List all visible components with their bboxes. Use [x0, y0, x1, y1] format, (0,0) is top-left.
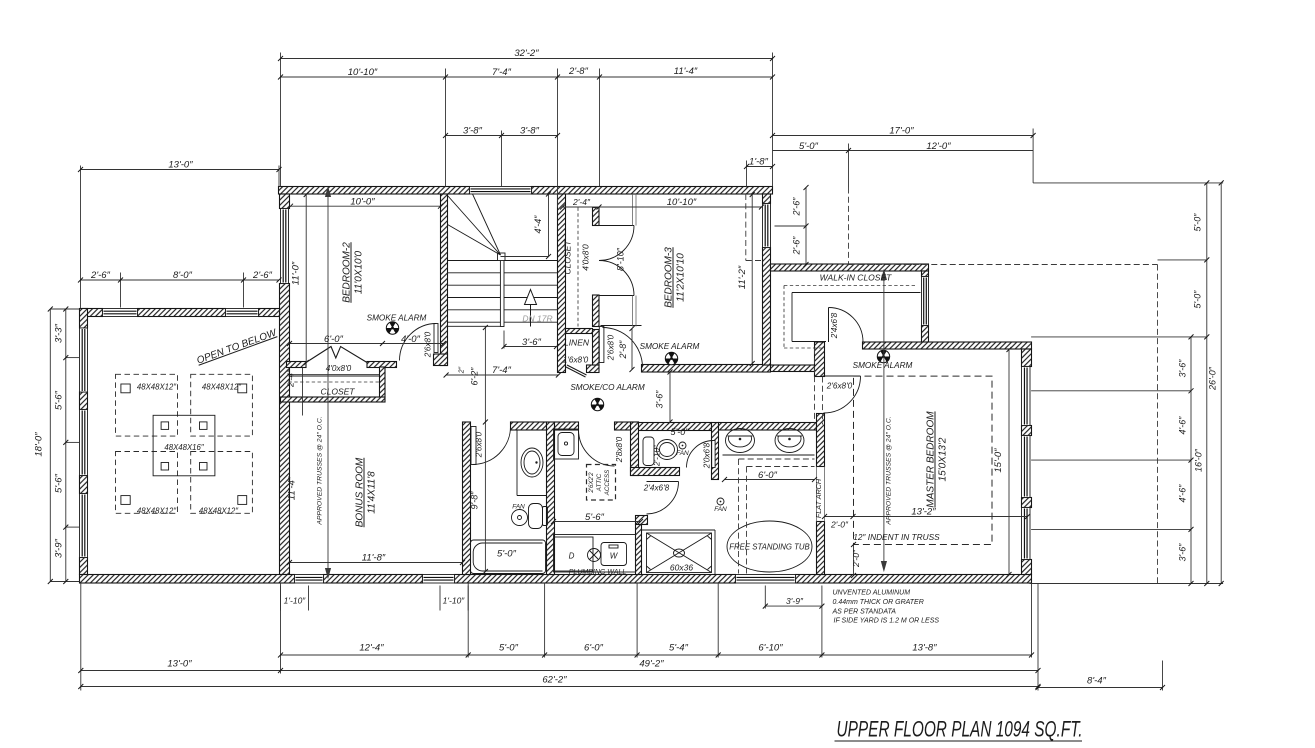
svg-text:WALK-IN CLOSET: WALK-IN CLOSET — [820, 273, 892, 283]
svg-text:CLOSET: CLOSET — [563, 240, 573, 275]
svg-text:26'-0″: 26'-0″ — [1208, 366, 1218, 391]
svg-text:AS PER STANDATA: AS PER STANDATA — [832, 608, 897, 615]
svg-text:13'-0″: 13'-0″ — [167, 659, 192, 670]
svg-text:FAN: FAN — [676, 450, 689, 457]
svg-text:SMOKE/CO ALARM: SMOKE/CO ALARM — [570, 383, 644, 392]
svg-text:11'4X11'8: 11'4X11'8 — [367, 471, 378, 514]
svg-text:48X48X16″: 48X48X16″ — [164, 443, 203, 452]
svg-text:5'-4″: 5'-4″ — [669, 643, 689, 654]
svg-text:2'6x8'0: 2'6x8'0 — [475, 431, 484, 458]
svg-text:APPROVED TRUSSES @ 24″ O.C.: APPROVED TRUSSES @ 24″ O.C. — [886, 416, 893, 525]
svg-text:5'-0″: 5'-0″ — [1193, 290, 1203, 309]
svg-text:15'0X13'2: 15'0X13'2 — [938, 437, 949, 481]
svg-text:11'-4″: 11'-4″ — [674, 66, 698, 77]
svg-text:1'-10″: 1'-10″ — [443, 596, 466, 606]
svg-text:LINEN: LINEN — [564, 338, 590, 348]
svg-text:11'-2″: 11'-2″ — [737, 265, 748, 289]
svg-text:16'-0″: 16'-0″ — [1194, 448, 1204, 472]
svg-text:4'0x8'0: 4'0x8'0 — [581, 244, 591, 271]
svg-text:8'-4″: 8'-4″ — [1087, 676, 1107, 687]
svg-text:5'-6″: 5'-6″ — [54, 390, 65, 410]
svg-text:8'-10″: 8'-10″ — [616, 247, 626, 271]
svg-text:MASTER BEDROOM: MASTER BEDROOM — [926, 411, 937, 508]
svg-text:FREE STANDING TUB: FREE STANDING TUB — [729, 543, 809, 552]
svg-text:6'-0″: 6'-0″ — [758, 470, 778, 481]
svg-text:3'-9″: 3'-9″ — [54, 538, 65, 558]
svg-text:2'6x8'0: 2'6x8'0 — [424, 331, 433, 358]
svg-text:IF SIDE YARD IS 1.2 M OR LESS: IF SIDE YARD IS 1.2 M OR LESS — [834, 618, 940, 625]
svg-text:62'-2″: 62'-2″ — [542, 675, 567, 686]
svg-text:10'-10″: 10'-10″ — [667, 197, 697, 208]
svg-text:FLAT ARCH: FLAT ARCH — [814, 478, 823, 518]
svg-text:6'-0″: 6'-0″ — [324, 334, 344, 345]
svg-text:1'6x8'0: 1'6x8'0 — [563, 356, 589, 365]
svg-text:SMOKE ALARM: SMOKE ALARM — [640, 342, 700, 351]
svg-text:48X48X12″: 48X48X12″ — [202, 383, 241, 392]
svg-text:3'-3″: 3'-3″ — [54, 323, 65, 343]
svg-text:5'-6″: 5'-6″ — [54, 473, 65, 493]
svg-text:2'-8″: 2'-8″ — [568, 66, 589, 77]
svg-text:17'-0″: 17'-0″ — [889, 126, 914, 137]
svg-text:5'-0″: 5'-0″ — [1193, 213, 1203, 232]
svg-text:11'-4″: 11'-4″ — [287, 476, 298, 500]
svg-text:2'-6″: 2'-6″ — [792, 236, 802, 256]
svg-text:BEDROOM-2: BEDROOM-2 — [342, 242, 353, 303]
svg-text:SMOKE ALARM: SMOKE ALARM — [853, 361, 913, 370]
svg-text:13'-0″: 13'-0″ — [168, 160, 193, 171]
svg-text:2'-8″: 2'-8″ — [618, 340, 628, 360]
svg-text:2″: 2″ — [459, 366, 466, 374]
svg-text:8'-0″: 8'-0″ — [173, 270, 193, 281]
svg-text:18'-0″: 18'-0″ — [34, 432, 45, 457]
svg-text:0.44mm THICK OR GRATER: 0.44mm THICK OR GRATER — [833, 599, 924, 606]
svg-text:10'-0″: 10'-0″ — [350, 197, 375, 208]
svg-text:2'4x6'8: 2'4x6'8 — [830, 312, 839, 339]
svg-text:48X48X12″: 48X48X12″ — [137, 507, 176, 516]
svg-text:4'-6″: 4'-6″ — [1178, 416, 1188, 435]
svg-text:12'-4″: 12'-4″ — [359, 643, 384, 654]
svg-text:6'-10″: 6'-10″ — [758, 643, 783, 654]
svg-text:5'-6″: 5'-6″ — [585, 512, 605, 523]
svg-text:CLOSET: CLOSET — [320, 387, 355, 397]
svg-text:BEDROOM-3: BEDROOM-3 — [664, 247, 675, 308]
svg-text:2'0x6'8: 2'0x6'8 — [703, 442, 712, 469]
svg-text:ACCESS: ACCESS — [604, 469, 611, 496]
svg-text:5'-0″: 5'-0″ — [671, 427, 690, 437]
svg-text:APPROVED TRUSSES @ 24″ O.C.: APPROVED TRUSSES @ 24″ O.C. — [317, 416, 324, 525]
svg-text:49'-2″: 49'-2″ — [639, 659, 664, 670]
svg-text:3'-6″: 3'-6″ — [1178, 359, 1188, 378]
svg-text:2'6X2'2: 2'6X2'2 — [588, 472, 595, 494]
svg-text:2'-0″: 2'-0″ — [830, 520, 849, 530]
svg-text:5'-0″: 5'-0″ — [799, 141, 819, 152]
svg-text:32'-2″: 32'-2″ — [514, 48, 539, 59]
svg-text:3'-8″: 3'-8″ — [463, 126, 483, 137]
svg-text:PLUMBING WALL: PLUMBING WALL — [569, 569, 627, 576]
svg-text:7'-4″: 7'-4″ — [492, 365, 512, 376]
svg-text:2'-0″: 2'-0″ — [851, 549, 861, 568]
svg-text:2'-6″: 2'-6″ — [252, 270, 273, 281]
svg-text:2'-6″: 2'-6″ — [90, 270, 111, 281]
svg-text:UNVENTED ALUMINUM: UNVENTED ALUMINUM — [833, 590, 911, 597]
svg-text:12'-0″: 12'-0″ — [926, 141, 951, 152]
svg-text:D: D — [569, 552, 575, 561]
svg-text:3'-9″: 3'-9″ — [786, 596, 804, 606]
svg-text:4'-4″: 4'-4″ — [533, 215, 543, 234]
svg-text:2'4x6'8: 2'4x6'8 — [643, 484, 670, 493]
svg-text:12″ INDENT IN TRUSS: 12″ INDENT IN TRUSS — [853, 532, 940, 542]
svg-text:1'-10″: 1'-10″ — [284, 596, 307, 606]
svg-text:4'-0″: 4'-0″ — [401, 334, 421, 345]
svg-text:2'-4″: 2'-4″ — [572, 197, 591, 207]
svg-text:3'-8″: 3'-8″ — [520, 126, 540, 137]
svg-text:ATTIC: ATTIC — [596, 473, 603, 492]
svg-text:FAN: FAN — [714, 506, 727, 513]
svg-text:60x36: 60x36 — [670, 563, 693, 573]
svg-text:11'-0″: 11'-0″ — [291, 261, 302, 285]
svg-text:48X48X12″: 48X48X12″ — [199, 507, 238, 516]
svg-text:6'-0″: 6'-0″ — [584, 643, 604, 654]
svg-text:48X48X12″: 48X48X12″ — [137, 383, 176, 392]
svg-text:13'-8″: 13'-8″ — [912, 643, 937, 654]
svg-text:10'-10″: 10'-10″ — [348, 67, 378, 78]
svg-text:FAN: FAN — [512, 504, 525, 511]
svg-text:2'6x8'0: 2'6x8'0 — [826, 382, 853, 391]
svg-text:11'-8″: 11'-8″ — [362, 553, 386, 564]
svg-text:3'-6″: 3'-6″ — [1178, 543, 1188, 562]
svg-text:2'-4″: 2'-4″ — [286, 369, 296, 388]
svg-text:2'6x8'0: 2'6x8'0 — [607, 334, 616, 361]
svg-text:2'-10″: 2'-10″ — [653, 444, 662, 467]
svg-text:2'8x8'0: 2'8x8'0 — [615, 436, 624, 463]
svg-text:6'-2″: 6'-2″ — [470, 367, 480, 386]
svg-text:1'-8″: 1'-8″ — [749, 157, 769, 168]
svg-text:UPPER FLOOR PLAN 1094 SQ.FT.: UPPER FLOOR PLAN 1094 SQ.FT. — [837, 717, 1083, 742]
svg-text:5'-0″: 5'-0″ — [497, 549, 517, 560]
svg-text:4'0x8'0: 4'0x8'0 — [326, 364, 352, 373]
svg-text:4'-6″: 4'-6″ — [1178, 484, 1188, 503]
svg-text:2'-6″: 2'-6″ — [792, 197, 802, 217]
svg-text:11'2X10'10: 11'2X10'10 — [676, 253, 687, 302]
svg-text:SMOKE ALARM: SMOKE ALARM — [367, 314, 427, 323]
svg-text:11'0X10'0: 11'0X10'0 — [354, 251, 365, 295]
svg-text:BONUS ROOM: BONUS ROOM — [355, 457, 366, 527]
svg-text:3'-6″: 3'-6″ — [655, 390, 665, 409]
svg-text:DN 17R: DN 17R — [522, 314, 552, 324]
svg-text:3'-6″: 3'-6″ — [522, 337, 542, 348]
svg-text:5'-0″: 5'-0″ — [499, 643, 519, 654]
svg-text:15'-0″: 15'-0″ — [993, 448, 1004, 473]
svg-text:7'-4″: 7'-4″ — [492, 67, 512, 78]
svg-text:9'-8″: 9'-8″ — [470, 491, 480, 510]
